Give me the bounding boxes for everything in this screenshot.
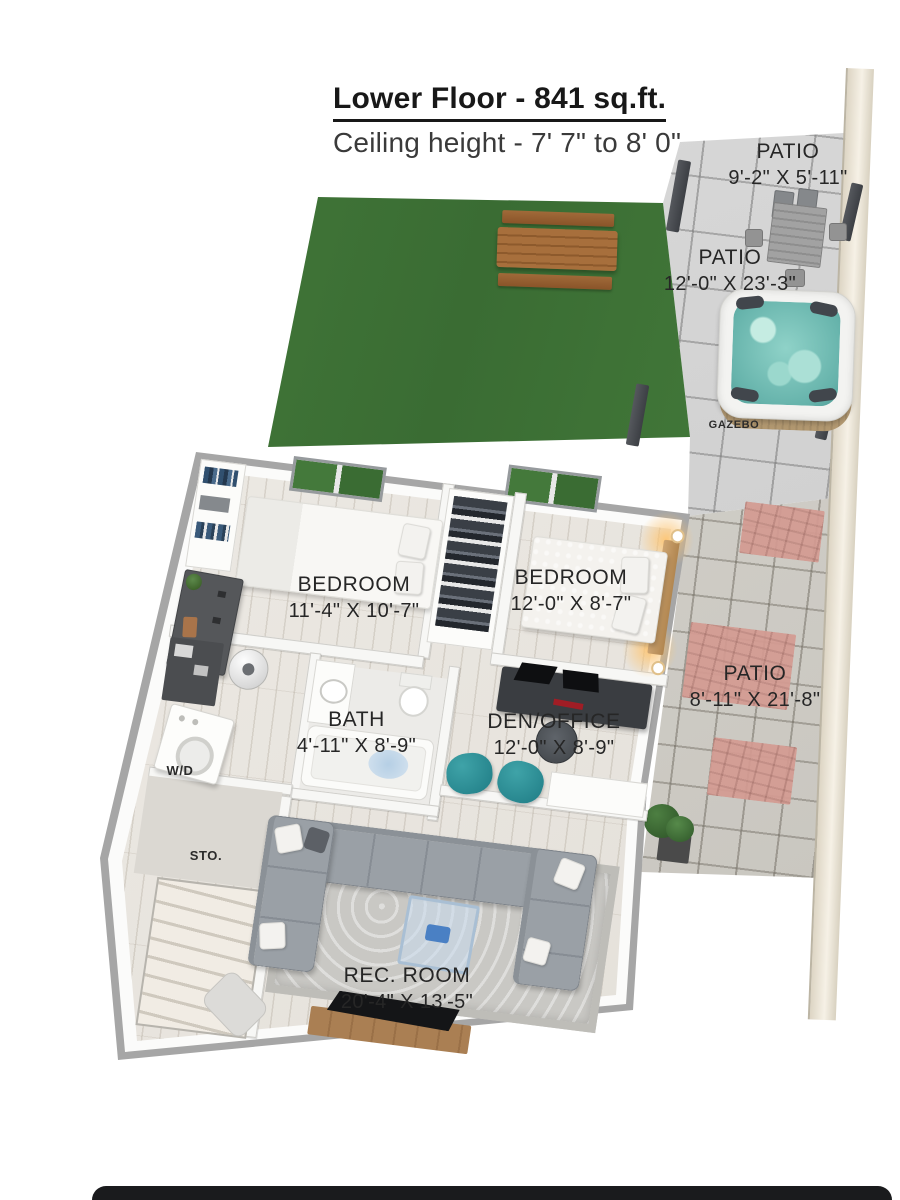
label-patio-side: PATIO 8'-11" X 21'-8" [650, 660, 860, 713]
label-bedroom-left: BEDROOM 11'-4" X 10'-7" [244, 571, 464, 624]
room-name: BEDROOM [461, 564, 681, 591]
bottom-bar [92, 1186, 892, 1200]
cabinet-item [174, 644, 194, 658]
room-name: PATIO [650, 244, 810, 271]
room-dims: 12'-0" X 8'-7" [461, 591, 681, 617]
room-dims: 8'-11" X 21'-8" [650, 687, 860, 713]
picnic-bench [502, 210, 614, 227]
storage-cabinet [161, 637, 224, 707]
label-patio-mid: PATIO 12'-0" X 23'-3" [650, 244, 810, 297]
sofa-pillow [274, 823, 304, 854]
header: Lower Floor - 841 sq.ft. Ceiling height … [333, 82, 681, 159]
window-well [289, 456, 387, 502]
heater-vent [242, 663, 256, 677]
sink [318, 677, 349, 705]
bag [182, 617, 197, 638]
label-rec-room: REC. ROOM 20'-4" X 13'-5" [277, 962, 537, 1015]
room-name: PATIO [650, 660, 860, 687]
brick-patch [707, 737, 797, 805]
label-bath: BATH 4'-11" X 8'-9" [269, 706, 444, 759]
hot-tub [716, 288, 861, 435]
room-name: BATH [269, 706, 444, 733]
room-dims: 9'-2" X 5'-11" [698, 165, 878, 191]
room-dims: 12'-0" X 8'-9" [444, 735, 664, 761]
drawer-handle [212, 617, 221, 624]
drawer-handle [217, 591, 226, 598]
water-heater [226, 647, 272, 693]
room-name: REC. ROOM [277, 962, 537, 989]
room-name: DEN/OFFICE [444, 708, 664, 735]
storage-bin [199, 495, 231, 513]
bookshelf [185, 459, 246, 572]
washer-knob [178, 715, 185, 723]
room-dims: 11'-4" X 10'-7" [244, 598, 464, 624]
label-storage: STO. [166, 848, 246, 863]
picnic-table [494, 210, 622, 294]
books [203, 467, 239, 487]
plant [184, 572, 203, 591]
picnic-tabletop [496, 227, 617, 271]
washer-knob [192, 718, 199, 726]
label-den-office: DEN/OFFICE 12'-0" X 8'-9" [444, 708, 664, 761]
cabinet-item [193, 665, 208, 677]
label-washer-dryer: W/D [145, 763, 215, 778]
brick-patch [739, 501, 825, 562]
table-decor [424, 924, 451, 944]
dining-stool [829, 223, 847, 241]
page-subtitle: Ceiling height - 7' 7" to 8' 0" [333, 127, 681, 159]
room-dims: 20'-4" X 13'-5" [277, 989, 537, 1015]
shrub [666, 816, 694, 842]
floorplan-page: Lower Floor - 841 sq.ft. Ceiling height … [0, 0, 900, 1200]
room-name: BEDROOM [244, 571, 464, 598]
room-dims: 4'-11" X 8'-9" [269, 733, 444, 759]
page-title: Lower Floor - 841 sq.ft. [333, 82, 666, 122]
sofa-pillow [259, 922, 286, 950]
label-bedroom-right: BEDROOM 12'-0" X 8'-7" [461, 564, 681, 617]
room-name: PATIO [698, 138, 878, 165]
picnic-bench [498, 273, 612, 290]
label-gazebo: GAZEBO [684, 419, 784, 431]
books [194, 521, 230, 541]
room-dims: 12'-0" X 23'-3" [650, 271, 810, 297]
label-patio-top: PATIO 9'-2" X 5'-11" [698, 138, 878, 191]
